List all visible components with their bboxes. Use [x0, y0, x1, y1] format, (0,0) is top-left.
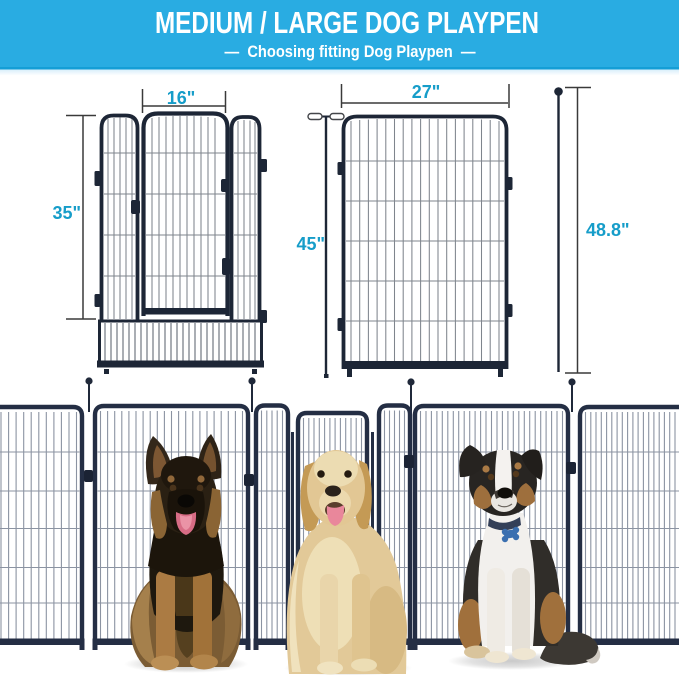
svg-text:35": 35"	[52, 203, 81, 223]
svg-text:48.8": 48.8"	[586, 220, 630, 240]
svg-text:45": 45"	[296, 234, 325, 254]
svg-text:— Choosing fitting Dog Plaype: — Choosing fitting Dog Playpen —	[225, 43, 476, 61]
svg-text:16": 16"	[167, 88, 196, 108]
svg-text:27": 27"	[412, 82, 441, 102]
svg-text:MEDIUM / LARGE DOG PLAYPEN: MEDIUM / LARGE DOG PLAYPEN	[155, 5, 539, 40]
